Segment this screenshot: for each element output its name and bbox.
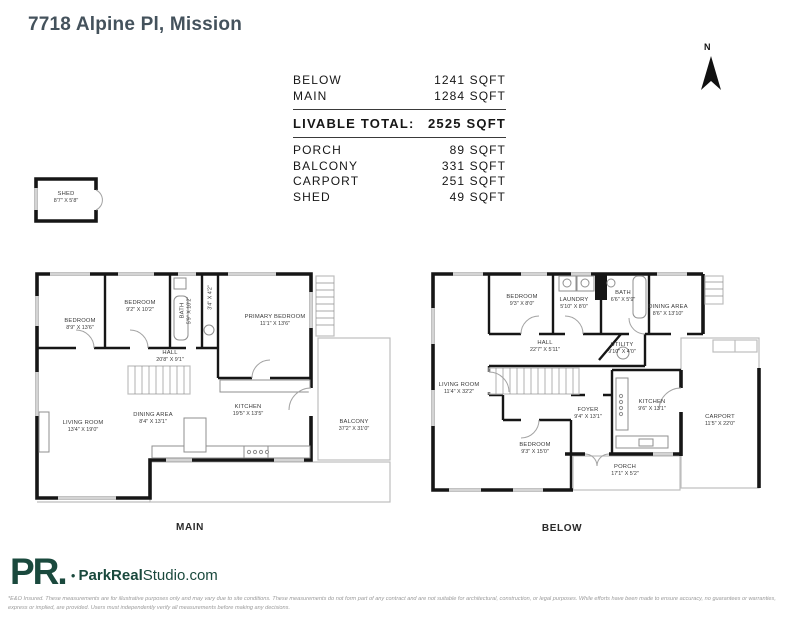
- below-walls: [433, 274, 759, 490]
- area-value: 1241 SQFT: [434, 73, 506, 89]
- below-floorplan: BEDROOM9'3" X 8'0" LAUNDRY5'10" X 8'0" B…: [425, 268, 770, 508]
- area-label: BALCONY: [293, 159, 358, 175]
- below-fixtures: [559, 276, 668, 448]
- shed-plan: SHED 8'7" X 5'8": [33, 176, 109, 224]
- total-value: 2525 SQFT: [428, 115, 506, 132]
- brand-url: ●ParkRealStudio.com: [66, 567, 218, 592]
- area-value: 251 SQFT: [442, 174, 506, 190]
- area-row: PORCH89 SQFT: [293, 143, 506, 159]
- below-floorplan-drawing: [425, 268, 770, 508]
- area-value: 49 SQFT: [450, 190, 506, 206]
- area-row: BELOW1241 SQFT: [293, 73, 506, 89]
- area-row: MAIN1284 SQFT: [293, 89, 506, 105]
- area-value: 1284 SQFT: [434, 89, 506, 105]
- divider: [293, 109, 506, 110]
- area-label: SHED: [293, 190, 331, 206]
- compass-north-label: N: [704, 42, 711, 52]
- main-floorplan: BEDROOM8'9" X 13'6" BEDROOM9'2" X 10'2" …: [28, 268, 396, 508]
- main-stairs: [128, 276, 334, 394]
- shed-drawing: [33, 176, 109, 224]
- area-label: MAIN: [293, 89, 327, 105]
- livable-total-row: LIVABLE TOTAL:2525 SQFT: [293, 115, 506, 132]
- divider: [293, 137, 506, 138]
- page-title: 7718 Alpine Pl, Mission: [28, 14, 242, 36]
- area-label: CARPORT: [293, 174, 359, 190]
- area-value: 331 SQFT: [442, 159, 506, 175]
- area-row: SHED49 SQFT: [293, 190, 506, 206]
- area-row: BALCONY331 SQFT: [293, 159, 506, 175]
- area-summary-table: BELOW1241 SQFT MAIN1284 SQFT LIVABLE TOT…: [293, 73, 506, 205]
- total-label: LIVABLE TOTAL:: [293, 115, 415, 132]
- bullet-icon: ●: [71, 571, 79, 580]
- caption-below: BELOW: [502, 523, 622, 534]
- below-carport-porch-outline: [573, 338, 759, 490]
- area-label: PORCH: [293, 143, 342, 159]
- disclaimer-text: *E&O Insured. These measurements are for…: [8, 595, 794, 613]
- floorplan-page: 7718 Alpine Pl, Mission N BELOW1241 SQFT…: [0, 0, 800, 619]
- caption-main: MAIN: [130, 522, 250, 533]
- brand-logo: PR. ●ParkRealStudio.com: [10, 552, 218, 592]
- main-balcony-outline: [37, 338, 390, 502]
- north-arrow-icon: [697, 54, 725, 92]
- area-label: BELOW: [293, 73, 342, 89]
- area-row: CARPORT251 SQFT: [293, 174, 506, 190]
- main-fixtures: [39, 278, 310, 458]
- brand-monogram: PR.: [10, 552, 66, 592]
- main-doors: [76, 330, 311, 416]
- main-floorplan-drawing: [28, 268, 396, 508]
- area-value: 89 SQFT: [450, 143, 506, 159]
